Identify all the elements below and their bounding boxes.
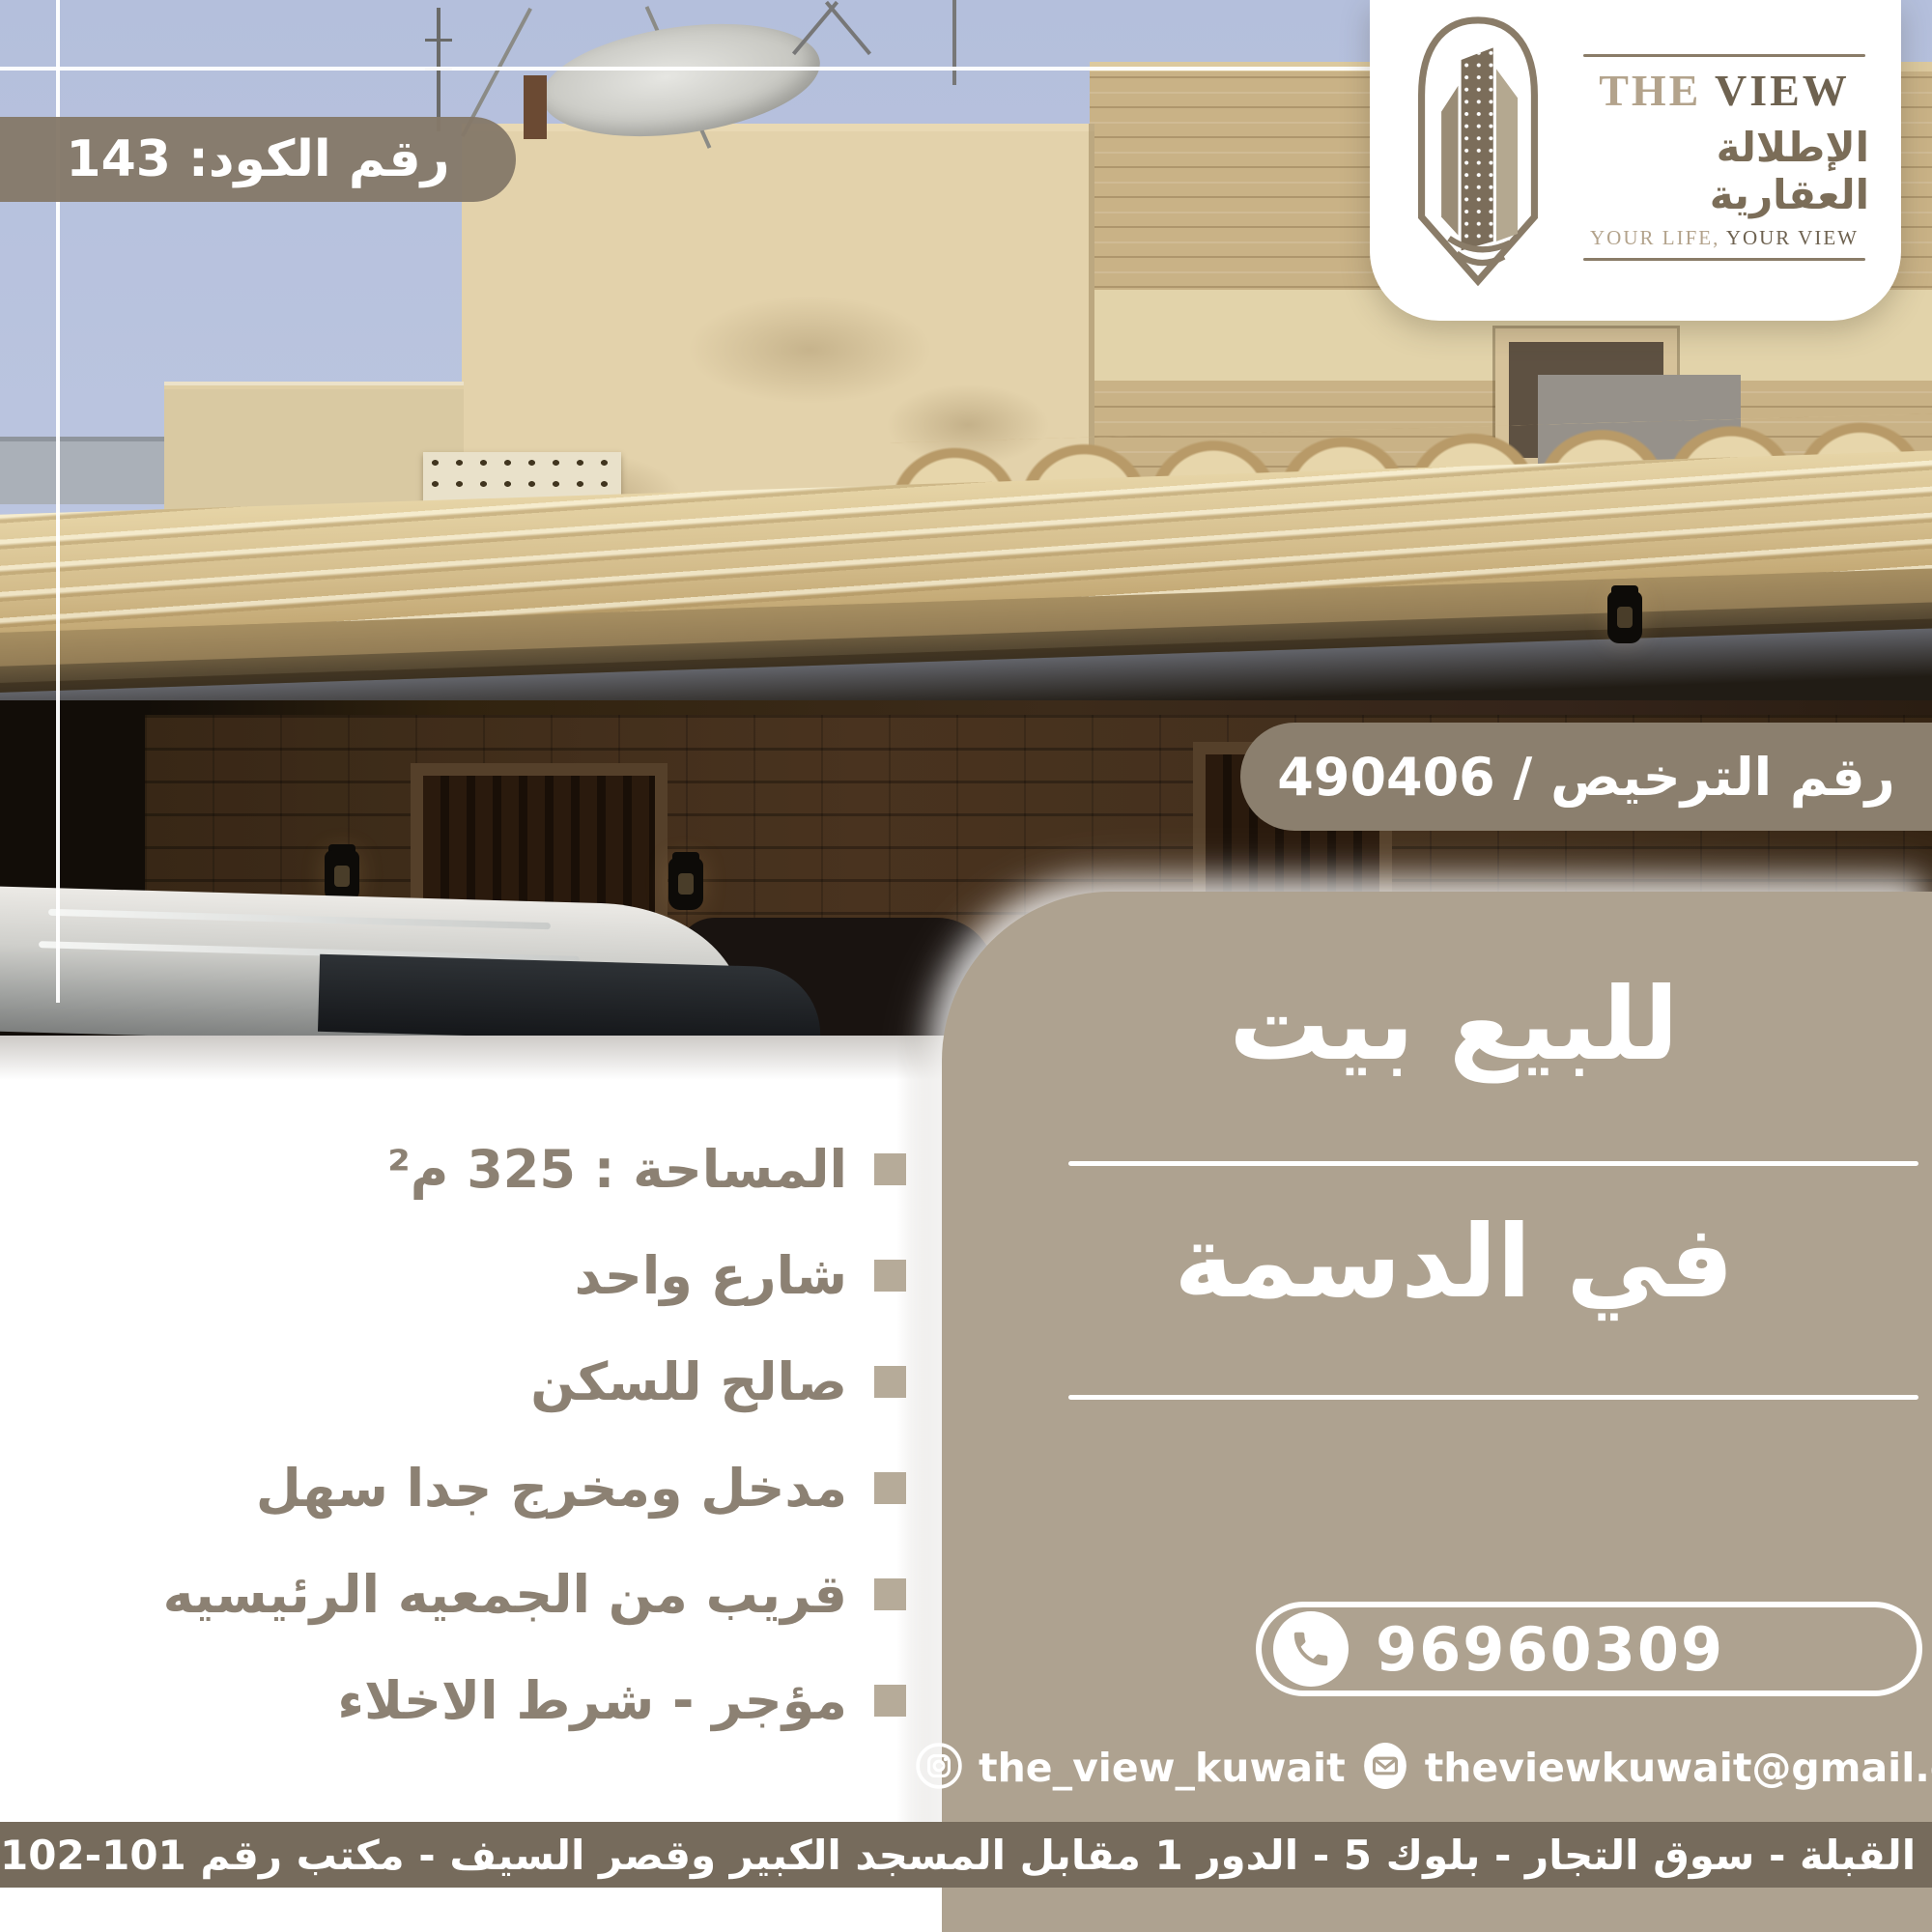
feature-item: مدخل ومخرج جدا سهل	[163, 1435, 906, 1541]
agency-logo-card: THE VIEW الإطلالة العقارية YOUR LIFE, YO…	[1370, 0, 1901, 321]
feature-item: صالح للسكن	[163, 1328, 906, 1435]
phone-icon	[1273, 1611, 1349, 1687]
agency-name-ar: الإطلالة العقارية	[1579, 124, 1869, 218]
phone-button[interactable]: 96960309	[1256, 1602, 1922, 1696]
feature-item: شارع واحد	[163, 1222, 906, 1328]
roof-chimney	[524, 75, 547, 139]
roof-pole	[952, 0, 956, 85]
feature-item: مؤجر - شرط الاخلاء	[163, 1647, 906, 1753]
license-badge: رقم الترخيص / 490406	[1240, 723, 1932, 831]
feature-livable: صالح للسكن	[530, 1351, 847, 1412]
email-address[interactable]: theviewkuwait@gmail.com	[1425, 1745, 1932, 1791]
wall-lantern	[1607, 591, 1642, 643]
agency-name-en: THE VIEW	[1599, 65, 1850, 116]
sale-title-line1: للبيع بيت	[995, 964, 1913, 1085]
office-address: القبلة - سوق التجار - بلوك 5 - الدور 1 م…	[0, 1832, 1916, 1879]
instagram-handle[interactable]: the_view_kuwait	[979, 1745, 1346, 1791]
logo-rule-bottom	[1583, 258, 1865, 261]
feature-street: شارع واحد	[575, 1245, 847, 1306]
feature-rented: مؤجر - شرط الاخلاء	[337, 1670, 847, 1731]
feature-item: المساحة : 325 م²	[163, 1116, 906, 1222]
feature-coop: قريب من الجمعيه الرئيسيه	[163, 1564, 847, 1625]
frame-line-horizontal	[0, 67, 1370, 71]
feature-list: المساحة : 325 م² شارع واحد صالح للسكن مد…	[163, 1116, 906, 1753]
email-icon	[1361, 1742, 1409, 1794]
antenna-crossbar	[425, 39, 452, 42]
title-separator	[1068, 1395, 1918, 1400]
agency-logo-text: THE VIEW الإطلالة العقارية YOUR LIFE, YO…	[1579, 54, 1869, 261]
phone-number: 96960309	[1376, 1614, 1724, 1685]
car-window	[318, 954, 822, 1036]
social-row: the_view_kuwait theviewkuwait@gmail.com	[1005, 1737, 1932, 1799]
feature-area: المساحة : 325 م²	[387, 1139, 847, 1200]
instagram-icon	[915, 1742, 963, 1794]
agency-building-logo-icon	[1402, 13, 1554, 302]
real-estate-poster: رقم الكود: 143 رقم الترخيص / 490406 THE …	[0, 0, 1932, 1932]
wall-lantern	[668, 858, 703, 910]
bullet-square	[874, 1685, 906, 1717]
bullet-square	[874, 1578, 906, 1610]
office-address-bar: القبلة - سوق التجار - بلوك 5 - الدور 1 م…	[0, 1822, 1932, 1888]
wall-lantern	[325, 850, 359, 902]
neighbor-parapet	[0, 437, 166, 504]
bullet-square	[874, 1260, 906, 1292]
sale-title-line2: في الدسمة	[995, 1202, 1913, 1322]
logo-rule-top	[1583, 54, 1865, 57]
bullet-square	[874, 1153, 906, 1185]
title-separator	[1068, 1161, 1918, 1166]
bullet-square	[874, 1366, 906, 1398]
code-badge-label: رقم الكود: 143	[66, 130, 449, 188]
bullet-square	[874, 1472, 906, 1504]
feature-item: قريب من الجمعيه الرئيسيه	[163, 1541, 906, 1647]
license-badge-label: رقم الترخيص / 490406	[1277, 747, 1894, 808]
code-badge: رقم الكود: 143	[0, 117, 516, 202]
feature-access: مدخل ومخرج جدا سهل	[256, 1458, 847, 1519]
agency-tagline: YOUR LIFE, YOUR VIEW	[1590, 226, 1859, 250]
